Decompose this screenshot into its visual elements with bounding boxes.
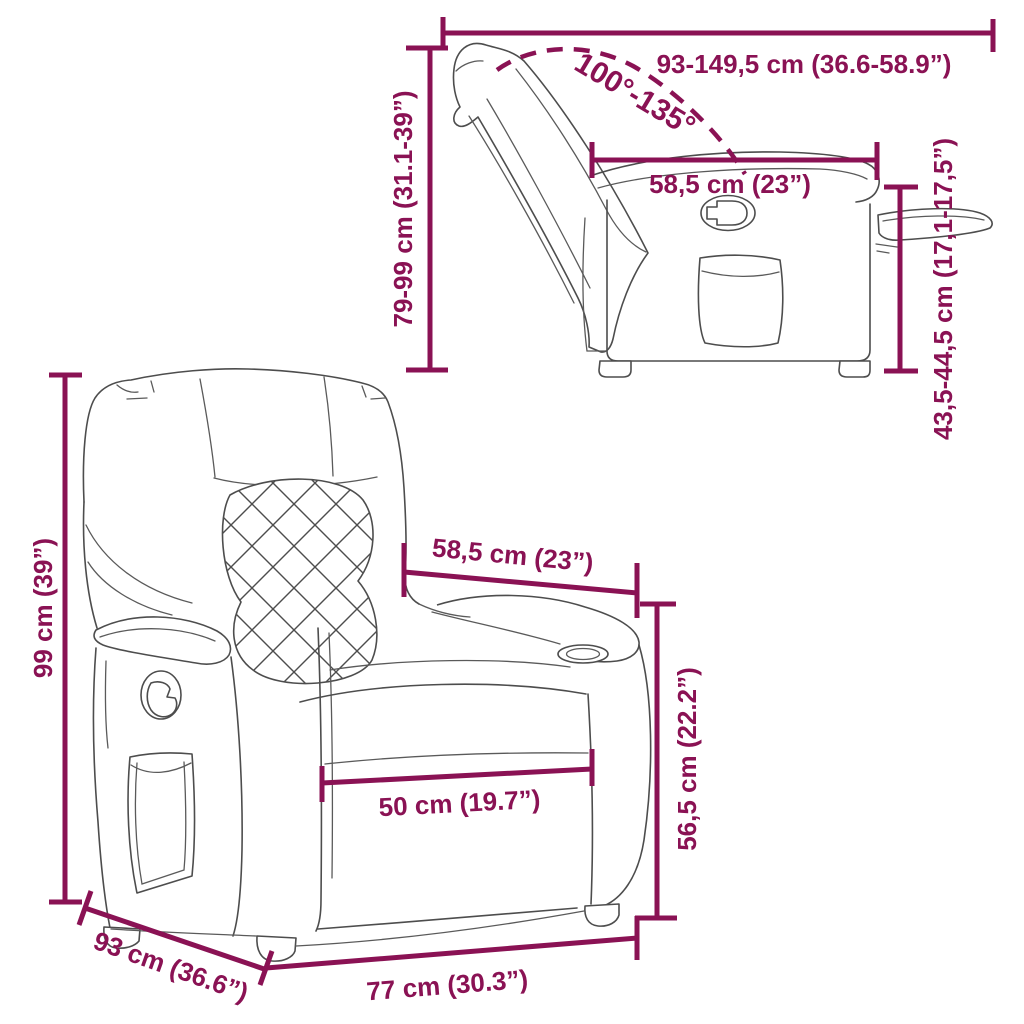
front-back-seam-right — [324, 377, 333, 476]
front-cupholder-icon — [558, 645, 608, 663]
dim-label-extension-length: 93-149,5 cm (36.6-58.9”) — [657, 49, 952, 79]
front-right-armrest — [419, 595, 651, 907]
side-recline-handle-icon — [701, 196, 755, 231]
front-lumbar-pillow — [210, 465, 390, 700]
dim-label-seat-height: 43,5-44,5 cm (17,1-17,5”) — [928, 138, 958, 440]
dimension-seat-height: 43,5-44,5 cm (17,1-17,5”) — [884, 138, 958, 440]
front-left-wing — [86, 525, 192, 603]
dim-label-total-width: 77 cm (30.3”) — [365, 964, 529, 1007]
front-feet — [104, 904, 619, 961]
dim-label-backrest-height: 79-99 cm (31.1-39”) — [388, 90, 418, 327]
front-left-wing-2 — [88, 562, 172, 615]
dim-label-seat-width: 50 cm (19.7”) — [378, 784, 541, 822]
front-side-pocket — [128, 753, 195, 893]
dim-label-total-height: 99 cm (39”) — [28, 538, 58, 678]
diagram-canvas: 93-149,5 cm (36.6-58.9”) 100°-135° 79-99… — [0, 0, 1024, 1024]
side-pocket — [698, 255, 782, 347]
dim-label-seat-depth: 58,5 cm (23”) — [649, 169, 811, 199]
front-pleat-marks — [117, 381, 385, 399]
side-foot-right — [839, 361, 870, 377]
dimension-total-height: 99 cm (39”) — [28, 375, 82, 902]
dimension-armrest-height: 56,5 cm (22.2”) — [635, 604, 702, 918]
front-back-seam-left — [200, 379, 215, 477]
front-crosshatch-pattern — [210, 465, 390, 700]
side-view-chair — [453, 43, 992, 377]
dimension-backrest-height: 79-99 cm (31.1-39”) — [388, 48, 448, 370]
dim-label-armrest-height: 56,5 cm (22.2”) — [672, 667, 702, 851]
side-foot-left — [599, 361, 631, 377]
dimension-diagram: 93-149,5 cm (36.6-58.9”) 100°-135° 79-99… — [0, 0, 1024, 1024]
front-view-chair — [83, 369, 650, 961]
dim-label-back-width: 58,5 cm (23”) — [431, 532, 595, 577]
front-recline-handle-icon — [141, 671, 181, 719]
